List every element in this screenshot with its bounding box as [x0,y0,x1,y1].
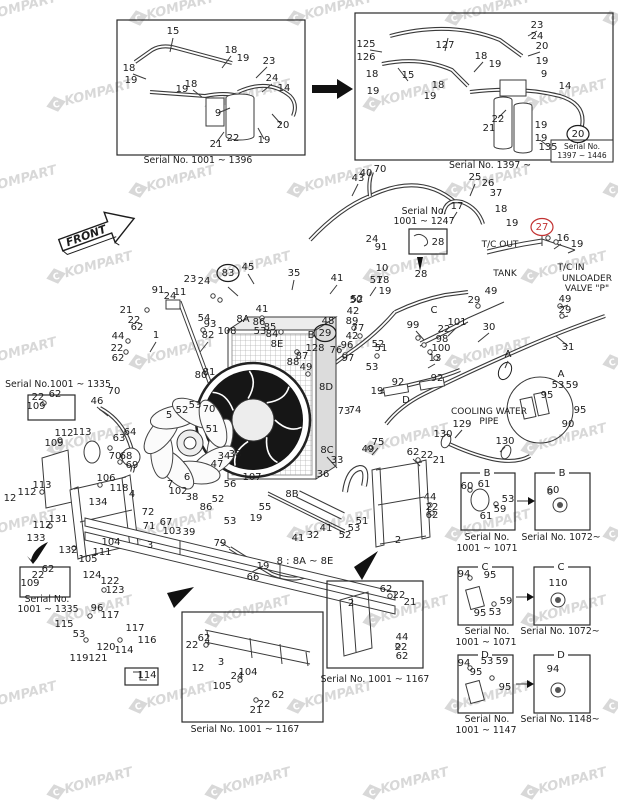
line [248,274,254,284]
callout-4: 4 [129,489,135,500]
inset-serial-1001-1247: Serial No.1001 ~ 124728 [393,206,454,254]
front-arrow-label: FRONT [64,222,109,249]
frame-2-posts [372,460,430,547]
callout-70: 70 [374,164,387,175]
callout-19: 19 [535,120,548,131]
callout-132: 132 [58,545,77,556]
inset-serial-1001-1396-caption: Serial No. 1001 ~ 1396 [144,155,253,166]
line [554,244,561,249]
detail-C-serial-1072-caption: Serial No. 1072~ [520,626,599,637]
callout-44: 44 [112,331,125,342]
callout-99: 99 [407,320,420,331]
callout-51: 51 [375,343,388,354]
line [414,234,428,246]
callout-72: 72 [142,507,155,518]
watermark-text: KOMPART [379,765,452,798]
fitting [118,638,122,642]
detail-D-serial-1001-1147-caption: Serial No. [465,714,510,725]
watermark-tile: CKOMPART [442,678,533,717]
callout-74: 74 [349,405,362,416]
callout-79: 79 [214,538,227,549]
c-new-grommet-hole [555,597,561,603]
callout-5: 5 [166,410,172,421]
fitting [145,308,149,312]
callout-62: 62 [112,353,125,364]
inset-clip-114: 114 [125,668,158,685]
watermark-tile: CKOMPART [202,764,293,800]
callout-41: 41 [256,304,269,315]
callout-15: 15 [167,26,180,37]
callout-60: 60 [547,485,560,496]
callout-8D: 8D [319,382,333,393]
detail-letter-D: D [557,650,565,661]
callout-52: 52 [176,405,189,416]
detail-C-serial-1001-1071-caption: Serial No. [465,626,510,637]
callout-19: 19 [424,91,437,102]
callout-61: 61 [478,479,491,490]
callout-70: 70 [203,404,216,415]
callout-62: 62 [198,633,211,644]
callout-91: 91 [375,242,388,253]
callout-117: 117 [125,623,144,634]
watermark-text: KOMPART [303,0,376,23]
callout-18: 18 [225,45,238,56]
callout-49: 49 [300,362,313,373]
callout-56: 56 [224,479,237,490]
callout-19: 19 [506,218,519,229]
line [370,287,376,296]
callout-59: 59 [566,380,579,391]
callout-69: 69 [126,460,139,471]
callout-94: 94 [458,569,471,580]
inset-serial-1001-1247-caption: 1001 ~ 1247 [393,216,454,227]
fitting [546,236,550,240]
callout-51: 51 [206,424,219,435]
callout-90: 90 [562,419,575,430]
callout-12: 12 [4,493,17,504]
annotation-unloader: UNLOADER [562,274,612,284]
callout-A: A [558,369,565,380]
callout-128: 128 [305,343,324,354]
callout-61: 61 [480,511,493,522]
wedge-arrow-frame3 [167,587,194,608]
callout-53: 53 [73,629,86,640]
callout-62: 62 [272,690,285,701]
callout-18: 18 [495,204,508,215]
callout-109: 109 [20,578,39,589]
callout-19: 19 [257,561,270,572]
detail-B-serial-1001-1071: BSerial No.1001 ~ 10716061535961 [456,467,517,554]
callout-15: 15 [402,70,415,81]
callout-17: 17 [451,201,464,212]
callout-94: 94 [458,658,471,669]
callout-2: 2 [348,598,354,609]
watermark-text: KOMPART [0,679,59,712]
d-new-grommet-hole [555,687,561,693]
inset-frame-serial-1001-1167-a-caption: Serial No. 1001 ~ 1167 [191,724,300,735]
detail-C-serial-1001-1071-caption: 1001 ~ 1071 [455,637,516,648]
callout-104: 104 [238,667,257,678]
callout-39: 39 [183,527,196,538]
inset-serial-1001-1335-b-caption: 1001 ~ 1335 [17,604,78,615]
callout-60: 60 [461,481,474,492]
callout-125: 125 [356,39,375,50]
callout-30: 30 [483,322,496,333]
bracket-9b [500,80,526,96]
watermark-tile: CKOMPART [442,0,533,28]
annotation-tank: TANK [492,269,518,279]
detail-B-serial-1072-caption: Serial No. 1072~ [521,532,600,543]
callout-109: 109 [26,401,45,412]
callout-33: 33 [331,455,344,466]
hose-outline [135,46,232,63]
detail-D-serial-1001-1147-caption: 1001 ~ 1147 [455,725,516,736]
callout-28: 28 [432,237,445,248]
callout-53: 53 [481,656,494,667]
watermark-tile: CKOMPART [0,334,59,373]
callout-37: 37 [490,188,503,199]
callout-94: 94 [547,664,560,675]
detail-B-serial-1001-1071-caption: Serial No. [465,532,510,543]
callout-52: 52 [339,530,352,541]
callout-52: 52 [212,494,225,505]
callout-A: A [505,349,512,360]
line [352,184,358,196]
callout-127: 127 [435,40,454,51]
callout-19: 19 [371,386,384,397]
watermark-tile: CKOMPART [600,334,618,373]
callout-92: 92 [392,377,405,388]
callout-C: C [431,305,438,316]
watermark-text: KOMPART [537,593,610,626]
callout-24: 24 [266,73,279,84]
watermark-tile: CKOMPART [44,764,135,800]
callout-123: 123 [105,585,124,596]
callout-49: 49 [485,286,498,297]
callout-53: 53 [552,380,565,391]
detail-D-serial-1148-caption: Serial No. 1148~ [520,714,599,725]
pointer-arrow-right [312,79,353,99]
callout-49: 49 [362,444,375,455]
callout-53: 53 [254,326,267,337]
callout-31: 31 [562,342,575,353]
line [568,250,575,253]
callout-41: 41 [320,523,333,534]
callout-109: 109 [44,438,63,449]
annotation-valve-p-: VALVE "P" [565,284,609,294]
callout-29: 29 [468,295,481,306]
line [474,62,483,72]
callout-95: 95 [499,682,512,693]
callout-22: 22 [421,450,434,461]
callout-21: 21 [404,597,417,608]
fitting [108,446,112,450]
callout-19: 19 [237,53,250,64]
callout-18: 18 [366,69,379,80]
callout-105: 105 [212,681,231,692]
callout-103: 103 [162,526,181,537]
callout-40: 40 [360,168,373,179]
curved-arrow [27,542,48,564]
watermark-tile: CKOMPART [202,592,293,631]
fitting [88,614,92,618]
callout-23: 23 [184,274,197,285]
line [428,364,435,368]
watermark-text: KOMPART [461,335,534,368]
callout-22: 22 [186,640,199,651]
callout-8A: 8A [236,314,249,325]
callout-71: 71 [143,521,156,532]
fitting [416,336,420,340]
callout-2: 2 [395,535,401,546]
hose-core [445,442,530,461]
callout-52: 52 [351,294,364,305]
arrow-head [528,497,535,505]
callout-41: 41 [331,273,344,284]
callout-49: 49 [559,294,572,305]
callout-47: 47 [211,459,224,470]
watermark-text: KOMPART [145,163,218,196]
callout-B: B [308,330,315,341]
fitting [211,294,215,298]
callout-62: 62 [426,510,439,521]
callout-23: 23 [531,20,544,31]
callout-18: 18 [123,63,136,74]
callout-81: 81 [203,367,216,378]
callout-3: 3 [147,540,153,551]
callout-8E: 8E [271,339,284,350]
arrow-head [527,593,534,601]
fitting [358,334,362,338]
watermark-text: KOMPART [63,249,136,282]
watermark-text: KOMPART [145,679,218,712]
callout-126: 126 [356,52,375,63]
callout-32: 32 [307,530,320,541]
callout-91: 91 [152,285,165,296]
callout-45: 45 [242,262,255,273]
callout-59: 59 [500,596,513,607]
callout-114: 114 [114,645,133,656]
callout-95: 95 [574,405,587,416]
callout-95: 95 [484,570,497,581]
callout-124: 124 [82,570,101,581]
callout-20: 20 [536,41,549,52]
callout-119: 119 [69,653,88,664]
callout-10: 10 [376,263,389,274]
callout-86: 86 [200,502,213,513]
callout-53: 53 [489,607,502,618]
detail-letter-B: B [484,468,491,479]
callout-55: 55 [259,502,272,513]
callout-108: 108 [217,326,236,337]
callout-115: 115 [54,619,73,630]
watermark-tile: CKOMPART [518,764,609,800]
callout-20: 20 [277,120,290,131]
bracket-7 [42,450,72,508]
watermark-tile: CKOMPART [0,162,59,201]
callout-35: 35 [288,268,301,279]
marker-A-ellipse [496,360,514,381]
annotation-cooling-water: COOLING WATER [451,407,527,417]
inset-serial-1397-caption: Serial No. 1397 ~ [449,160,531,171]
callout-130: 130 [495,436,514,447]
callout-62: 62 [131,322,144,333]
watermark-tile: CKOMPART [126,0,217,28]
callout-113: 113 [72,427,91,438]
watermark-tile: CKOMPART [0,0,59,28]
watermark-tile: CKOMPART [360,764,451,800]
callout-28: 28 [415,269,428,280]
fitting [126,339,130,343]
callout-133: 133 [26,533,45,544]
watermark-text: KOMPART [0,0,59,23]
callout-19: 19 [125,75,138,86]
watermark-text: KOMPART [461,0,534,23]
callout-107: 107 [242,472,261,483]
callout-116: 116 [137,635,156,646]
callout-53: 53 [366,362,379,373]
callout-118: 118 [109,483,128,494]
callout-46: 46 [91,396,104,407]
callout-38: 38 [186,492,199,503]
watermark-text: KOMPART [537,765,610,798]
inset-serial-1001-1335-b: Serial No.1001 ~ 13356222109 [17,564,78,615]
callout-53: 53 [224,516,237,527]
callout-95: 95 [474,608,487,619]
callout-97: 97 [342,353,355,364]
inset-frame-serial-1001-1167-b-caption: Serial No. 1001 ~ 1167 [321,674,430,685]
callout-38: 38 [229,449,242,460]
callout-6: 6 [184,472,190,483]
detail-letter-C: C [558,562,565,573]
watermark-text: KOMPART [0,163,59,196]
callout-29: 29 [559,305,572,316]
callout-113: 113 [32,480,51,491]
callout-19: 19 [258,135,271,146]
line [292,280,294,290]
callout-93: 93 [204,319,217,330]
watermark-tile: CKOMPART [126,678,217,717]
watermark-text: KOMPART [63,765,136,798]
fitting [490,676,494,680]
watermark-tile: CKOMPART [600,162,618,201]
spacer-6 [84,441,100,463]
callout-D: D [402,395,410,406]
line [250,638,282,664]
watermark-text: KOMPART [0,335,59,368]
callout-19: 19 [536,56,549,67]
watermark-tile: CKOMPART [600,506,618,545]
exploded-parts-diagram: CKOMPARTCKOMPARTCKOMPARTCKOMPARTCKOMPART… [0,0,618,800]
callout-134: 134 [88,497,107,508]
callout-95: 95 [541,390,554,401]
callout-51: 51 [370,275,383,286]
callout-110: 110 [548,578,567,589]
annotation-pipe: PIPE [479,417,499,427]
callout-19: 19 [250,513,263,524]
fitting [422,343,426,347]
callout-53: 53 [189,400,202,411]
callout-8C: 8C [320,445,333,456]
callout-117: 117 [100,610,119,621]
detail-C-serial-1001-1071: CSerial No.1001 ~ 10719495595395 [455,561,516,648]
callout-121: 121 [88,653,107,664]
watermark-tile: CKOMPART [0,678,59,717]
callout-19: 19 [489,59,502,70]
callout-1: 1 [153,330,159,341]
callout-23: 23 [263,56,276,67]
callout-18: 18 [475,51,488,62]
line [228,287,238,296]
callout-62: 62 [49,389,62,400]
annotation-8-8a-8e: 8 : 8A ~ 8E [277,556,334,567]
callout-29: 29 [319,328,332,339]
callout-3: 3 [218,657,224,668]
callout-105: 105 [78,554,97,565]
callout-9: 9 [215,108,221,119]
c-old-flange [466,587,485,610]
callout-14: 14 [559,81,572,92]
callout-63: 63 [113,433,126,444]
callout-64: 64 [124,427,137,438]
callout-25: 25 [469,172,482,183]
callout-114: 114 [137,670,156,681]
callout-66: 66 [247,572,260,583]
callout-12: 12 [192,663,205,674]
annotation-t-c-out: T/C OUT [481,240,519,250]
callout-21: 21 [210,139,223,150]
callout-41: 41 [292,533,305,544]
callout-120: 120 [96,642,115,653]
callout-95: 95 [470,667,483,678]
callout-88: 88 [287,357,300,368]
callout-19: 19 [367,86,380,97]
callout-92: 92 [431,373,444,384]
callout-36: 36 [317,469,330,480]
inner-caption: 1397 ~ 1446 [557,151,606,160]
fitting [375,354,379,358]
callout-42: 42 [346,331,359,342]
watermark-tile: CKOMPART [600,678,618,717]
callout-19: 19 [571,239,584,250]
callout-21: 21 [250,705,263,716]
watermark-tile: CKOMPART [44,76,135,115]
watermark-text: KOMPART [221,593,294,626]
callout-129: 129 [452,419,471,430]
fitting [492,602,496,606]
wedge-arrow-frame2 [354,551,378,580]
watermark-tile: CKOMPART [442,334,533,373]
callout-48: 48 [322,316,335,327]
callout-16: 16 [557,233,570,244]
fitting [218,298,222,302]
line [330,285,337,294]
watermark-text: KOMPART [221,765,294,798]
callout-135: 135 [538,142,557,153]
inset-frame-serial-1001-1167-a: Serial No. 1001 ~ 1167622212324104105622… [182,612,323,735]
line [455,430,462,438]
watermark-tile: CKOMPART [600,0,618,28]
callout-20: 20 [572,129,585,140]
callout-83: 83 [222,268,235,279]
b-new-grommet-hole [557,502,563,508]
callout-59: 59 [496,656,509,667]
callout-27: 27 [536,222,549,233]
callout-130: 130 [433,429,452,440]
annotation-t-c-in: T/C IN [556,263,584,273]
inner-caption: Serial No. [564,142,600,151]
callout-70: 70 [108,386,121,397]
